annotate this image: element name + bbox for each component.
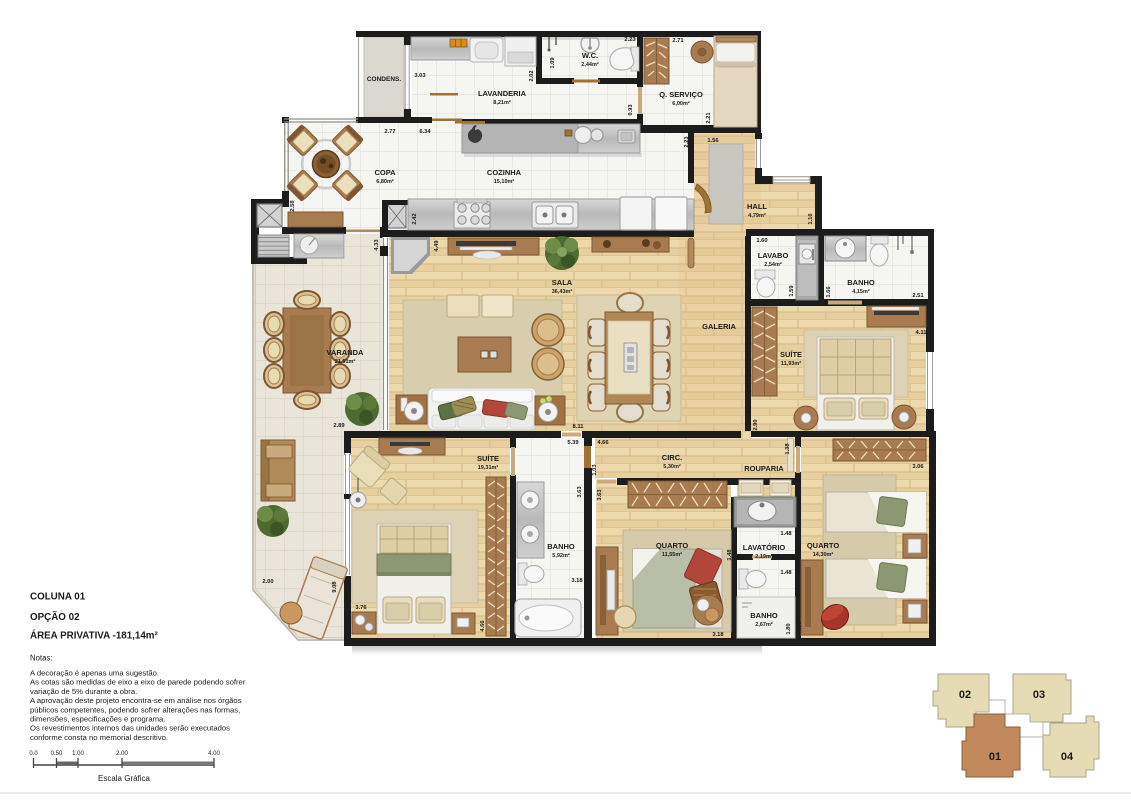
svg-text:2.71: 2.71 (672, 38, 684, 44)
svg-text:0.50: 0.50 (51, 751, 63, 757)
svg-text:01: 01 (989, 751, 1001, 763)
svg-text:1.00: 1.00 (72, 751, 84, 757)
svg-text:1.66: 1.66 (826, 286, 832, 298)
svg-text:Os revestimentos internos das: Os revestimentos internos das unidades s… (30, 724, 230, 733)
svg-text:2.51: 2.51 (912, 293, 924, 299)
svg-text:1.80: 1.80 (786, 623, 792, 634)
svg-text:SALA: SALA (552, 278, 573, 287)
svg-text:OPÇÃO 02: OPÇÃO 02 (30, 612, 80, 623)
svg-text:VARANDA: VARANDA (327, 348, 365, 357)
svg-text:CONDENS.: CONDENS. (367, 76, 402, 83)
svg-text:BANHO: BANHO (847, 278, 875, 287)
svg-text:3.63: 3.63 (577, 486, 583, 498)
svg-text:1.60: 1.60 (756, 238, 767, 244)
svg-text:5,30m²: 5,30m² (663, 463, 681, 470)
svg-text:2.02: 2.02 (529, 70, 535, 81)
svg-text:1.48: 1.48 (727, 549, 733, 561)
svg-text:Q. SERVIÇO: Q. SERVIÇO (659, 90, 703, 99)
svg-text:9.08: 9.08 (332, 581, 338, 593)
svg-text:COLUNA 01: COLUNA 01 (30, 592, 86, 603)
svg-text:4.49: 4.49 (434, 240, 440, 252)
svg-text:3.18: 3.18 (712, 632, 724, 638)
svg-text:2.42: 2.42 (412, 213, 418, 224)
svg-text:1.48: 1.48 (780, 570, 792, 576)
svg-text:0.93: 0.93 (628, 104, 634, 116)
svg-text:SUÍTE: SUÍTE (477, 454, 499, 463)
svg-text:2.21: 2.21 (706, 112, 712, 124)
svg-text:3.06: 3.06 (912, 464, 924, 470)
svg-text:W.C.: W.C. (582, 51, 598, 60)
svg-text:QUARTO: QUARTO (656, 541, 689, 550)
svg-text:HALL: HALL (747, 202, 767, 211)
svg-text:3.03: 3.03 (414, 73, 426, 79)
svg-text:Notas:: Notas: (30, 654, 53, 663)
svg-text:1.38: 1.38 (785, 443, 791, 455)
svg-text:públicos competentes, podendo: públicos competentes, podendo sofrer alt… (30, 705, 240, 714)
svg-text:4.33: 4.33 (374, 239, 380, 251)
svg-text:3.63: 3.63 (597, 489, 603, 501)
svg-text:conforme consta no memorial de: conforme consta no memorial descritivo. (30, 733, 168, 742)
svg-text:4.66: 4.66 (797, 621, 803, 633)
svg-text:36,43m²: 36,43m² (552, 288, 573, 295)
svg-text:2.58: 2.58 (290, 200, 296, 212)
svg-text:variação de 5% durante a obra.: variação de 5% durante a obra. (30, 687, 137, 696)
svg-text:Escala Gráfica: Escala Gráfica (98, 774, 151, 783)
svg-text:ÁREA PRIVATIVA -181,14m²: ÁREA PRIVATIVA -181,14m² (30, 630, 158, 642)
svg-text:5.39: 5.39 (567, 440, 579, 446)
svg-text:8,21m²: 8,21m² (493, 99, 511, 106)
svg-text:LAVANDERIA: LAVANDERIA (478, 89, 527, 98)
svg-text:1.03: 1.03 (592, 464, 598, 476)
svg-text:2,54m²: 2,54m² (764, 261, 782, 268)
svg-text:2.23: 2.23 (624, 37, 636, 43)
svg-text:6.34: 6.34 (419, 129, 431, 135)
svg-text:19,31m²: 19,31m² (478, 464, 499, 471)
svg-text:1.16: 1.16 (808, 213, 814, 225)
svg-text:BANHO: BANHO (750, 611, 778, 620)
svg-text:6,00m²: 6,00m² (672, 100, 690, 107)
svg-text:14,30m²: 14,30m² (813, 551, 834, 558)
svg-text:2.77: 2.77 (384, 129, 395, 135)
svg-text:4,79m²: 4,79m² (748, 212, 766, 219)
svg-text:11,55m²: 11,55m² (662, 551, 682, 558)
svg-text:1.09: 1.09 (550, 57, 556, 69)
svg-text:BANHO: BANHO (547, 542, 575, 551)
svg-text:A aprovação deste projeto enco: A aprovação deste projeto encontra-se em… (30, 696, 242, 705)
svg-text:2.00: 2.00 (116, 751, 128, 757)
svg-text:LAVABO: LAVABO (758, 251, 789, 260)
svg-text:11,93m²: 11,93m² (781, 360, 801, 367)
svg-text:2,19m²: 2,19m² (755, 553, 773, 560)
svg-text:4.66: 4.66 (597, 440, 609, 446)
svg-text:3.76: 3.76 (355, 605, 367, 611)
svg-text:3.18: 3.18 (571, 578, 583, 584)
svg-text:1.56: 1.56 (707, 138, 719, 144)
svg-text:03: 03 (1033, 689, 1045, 701)
svg-text:COZINHA: COZINHA (487, 168, 522, 177)
svg-text:SUÍTE: SUÍTE (780, 350, 802, 359)
svg-text:LAVATÓRIO: LAVATÓRIO (743, 543, 786, 552)
svg-text:04: 04 (1061, 751, 1074, 763)
svg-text:2.23: 2.23 (684, 136, 690, 148)
svg-text:QUARTO: QUARTO (807, 541, 840, 550)
svg-text:2,67m²: 2,67m² (755, 621, 773, 628)
svg-text:A decoração é apenas uma suges: A decoração é apenas uma sugestão. (30, 669, 159, 678)
svg-text:1.59: 1.59 (789, 285, 795, 297)
svg-text:8.11: 8.11 (573, 424, 585, 430)
svg-text:As cotas são medidas de eixo a: As cotas são medidas de eixo a eixo de p… (30, 678, 246, 687)
svg-text:2.90: 2.90 (753, 419, 759, 430)
svg-text:1.48: 1.48 (780, 531, 792, 537)
svg-text:2,44m²: 2,44m² (581, 61, 599, 68)
svg-text:CIRC.: CIRC. (662, 453, 682, 462)
svg-text:4.11: 4.11 (916, 330, 928, 336)
svg-text:ROUPARIA: ROUPARIA (744, 464, 784, 473)
svg-text:5,92m²: 5,92m² (552, 552, 570, 559)
svg-text:2.00: 2.00 (262, 579, 273, 585)
svg-text:GALERIA: GALERIA (702, 322, 736, 331)
svg-text:4.66: 4.66 (480, 620, 486, 632)
svg-text:2.89: 2.89 (333, 423, 345, 429)
svg-text:COPA: COPA (374, 168, 396, 177)
svg-text:dimensões, especificações e pr: dimensões, especificações e programa. (30, 715, 165, 724)
svg-text:6,80m²: 6,80m² (376, 178, 394, 185)
svg-text:02: 02 (959, 689, 971, 701)
svg-text:21,51m²: 21,51m² (335, 358, 356, 365)
svg-text:0.0: 0.0 (29, 751, 38, 757)
svg-text:15,10m²: 15,10m² (494, 178, 515, 185)
svg-text:4,15m²: 4,15m² (852, 288, 870, 295)
svg-text:4.00: 4.00 (208, 751, 220, 757)
